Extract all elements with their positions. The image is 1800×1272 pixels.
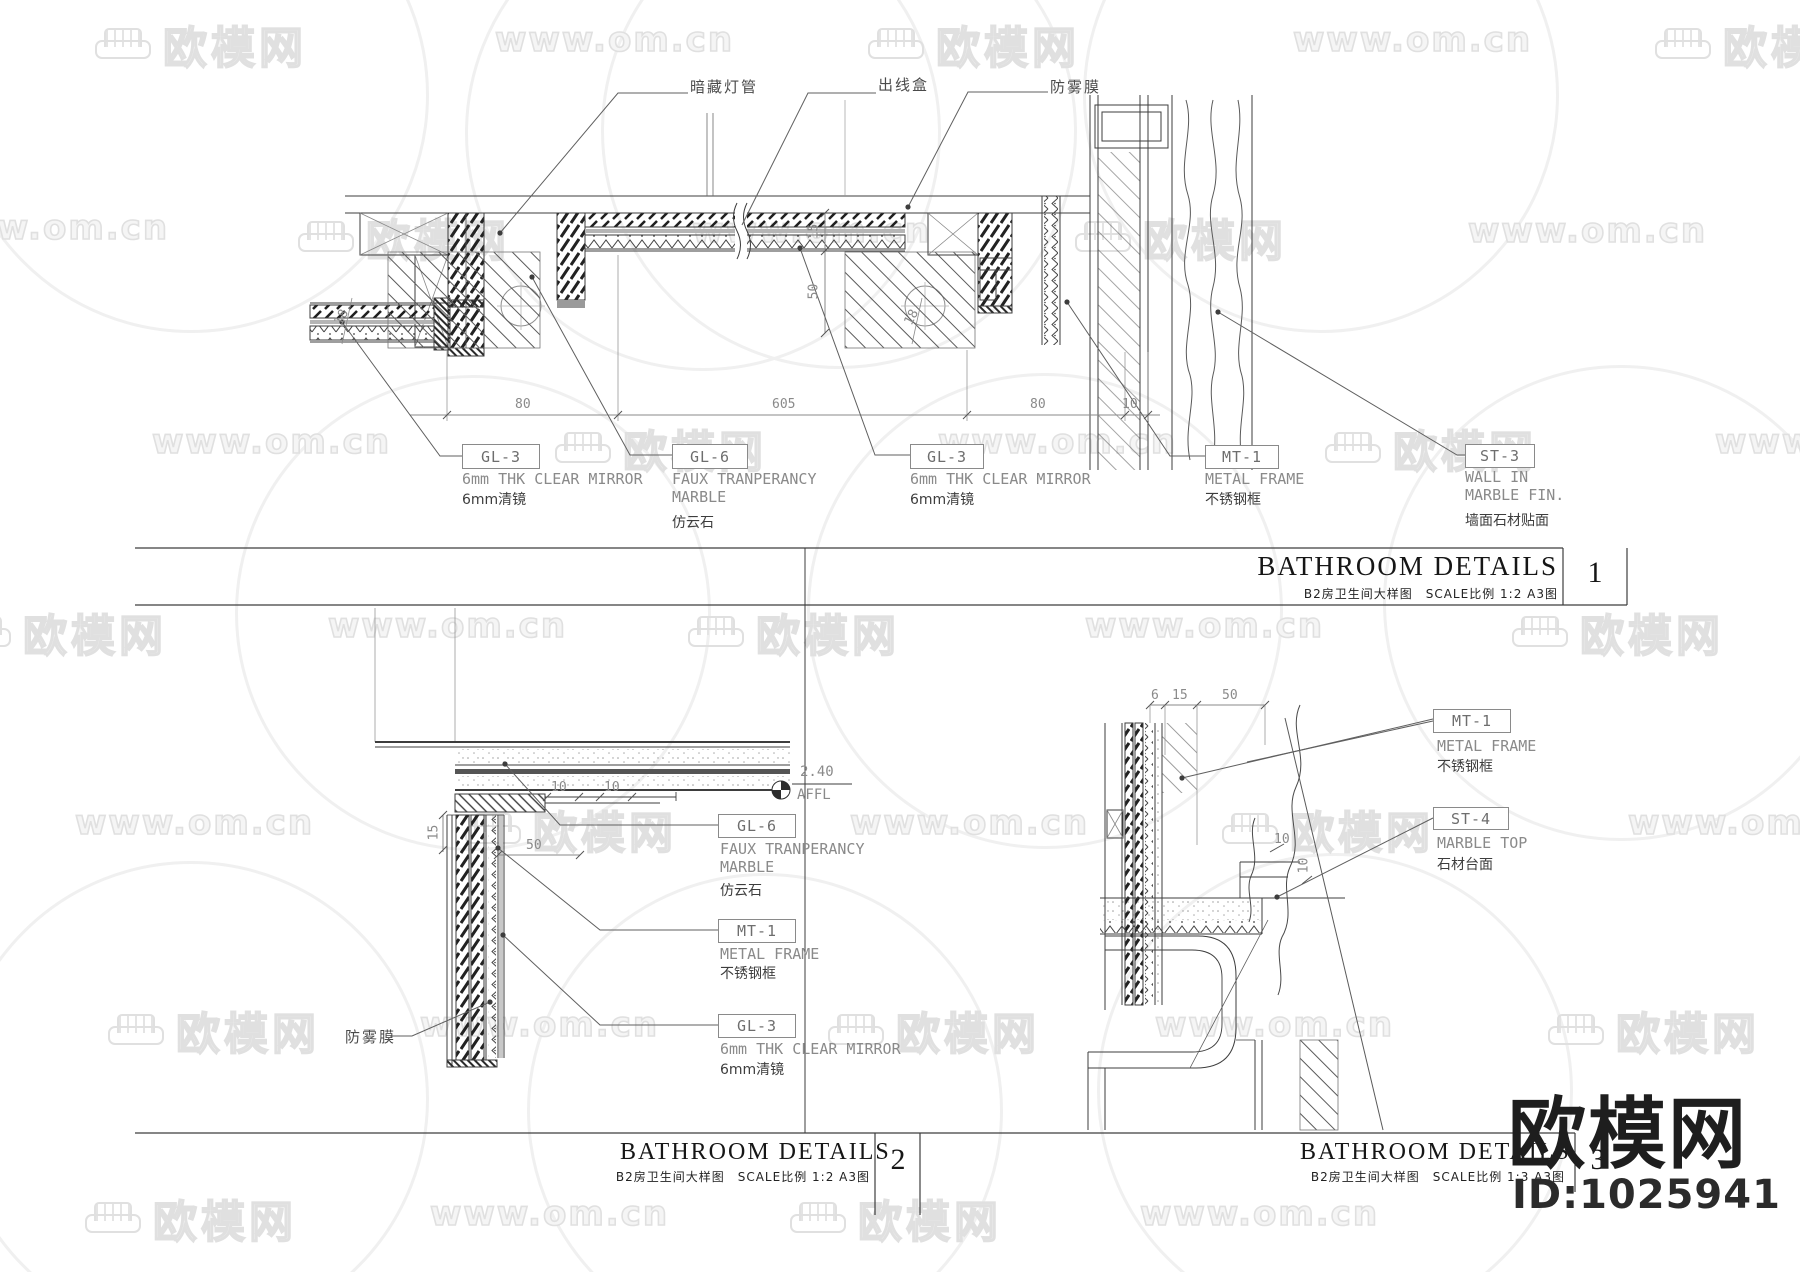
callout-hidden-lamp: 暗藏灯管 — [690, 76, 758, 97]
detail-1-drawing — [310, 95, 1252, 470]
callout-antifog-film: 防雾膜 — [345, 1026, 396, 1047]
tag-code: GL-6 — [737, 817, 777, 835]
tag-caption-en: 6mm THK CLEAR MIRROR — [462, 470, 643, 488]
tag-caption-cn: 不锈钢框 — [1205, 489, 1261, 509]
dim-label: 15 — [1172, 688, 1188, 703]
tag-code: GL-6 — [690, 448, 730, 466]
tag-caption-en: MARBLE — [672, 488, 726, 506]
tag-code: MT-1 — [737, 922, 777, 940]
material-tag-gl3: GL-3 — [462, 444, 540, 469]
tag-caption-en: MARBLE FIN. — [1465, 486, 1564, 504]
tag-caption-cn: 石材台面 — [1437, 854, 1493, 874]
level-value: 2.40 — [800, 764, 834, 780]
dim-label: 15 — [806, 224, 821, 240]
detail-2-subtitle: B2房卫生间大样图 SCALE比例 1:2 A3图 — [555, 1168, 870, 1185]
callout-outlet-box: 出线盒 — [878, 74, 929, 95]
detail-1-subtitle: B2房卫生间大样图 SCALE比例 1:2 A3图 — [1160, 585, 1558, 602]
tag-caption-cn: 墙面石材贴面 — [1465, 510, 1549, 530]
dim-label: 50 — [806, 284, 821, 300]
tag-caption-cn: 不锈钢框 — [720, 963, 776, 983]
tag-caption-cn: 不锈钢框 — [1437, 756, 1493, 776]
dim-label: 605 — [772, 397, 795, 412]
detail-2-number: 2 — [876, 1143, 920, 1177]
image-id: ID:1025941 — [1512, 1172, 1781, 1218]
tag-caption-cn: 6mm清镜 — [720, 1059, 784, 1079]
drawing-sheet: 欧模网 www.om.cn 欧模网 www.om.cn 欧模网 www.om.c… — [0, 0, 1800, 1272]
material-tag-mt1: MT-1 — [718, 919, 796, 943]
level-datum: AFFL — [797, 787, 831, 803]
material-tag-gl3: GL-3 — [910, 444, 984, 469]
dim-label: 80 — [1030, 397, 1046, 412]
tag-caption-en: 6mm THK CLEAR MIRROR — [910, 470, 1091, 488]
dim-label: 80 — [515, 397, 531, 412]
detail-3-drawing — [1088, 705, 1383, 1130]
detail-1-title: BATHROOM DETAILS — [1160, 551, 1558, 582]
tag-caption-en: METAL FRAME — [1205, 470, 1304, 488]
tag-code: MT-1 — [1222, 448, 1262, 466]
tag-caption-en: 6mm THK CLEAR MIRROR — [720, 1040, 901, 1058]
tag-caption-en: METAL FRAME — [720, 945, 819, 963]
dim-label: 50 — [1222, 688, 1238, 703]
tag-caption-en: WALL IN — [1465, 468, 1528, 486]
tag-caption-cn: 仿云石 — [720, 880, 762, 900]
tag-caption-cn: 6mm清镜 — [462, 489, 526, 509]
material-tag-gl6: GL-6 — [718, 814, 796, 838]
tag-caption-en: MARBLE — [720, 858, 774, 876]
dim-label: 50 — [526, 838, 542, 853]
tag-caption-en: FAUX TRANPERANCY — [672, 470, 817, 488]
dim-label: 10 — [1296, 858, 1311, 874]
material-tag-mt1: MT-1 — [1205, 445, 1279, 469]
material-tag-st4: ST-4 — [1433, 807, 1509, 830]
dim-label: 6 — [1151, 688, 1159, 703]
tag-code: ST-3 — [1480, 447, 1520, 465]
detail-1-number: 1 — [1572, 556, 1618, 590]
material-tag-mt1: MT-1 — [1433, 709, 1511, 733]
site-logo: 欧模网 — [1508, 1072, 1748, 1184]
callout-antifog-film: 防雾膜 — [1050, 76, 1101, 97]
tag-caption-en: FAUX TRANPERANCY — [720, 840, 865, 858]
dim-label: 10 — [1274, 832, 1290, 847]
dim-label: 10 — [1122, 397, 1138, 412]
tag-caption-cn: 仿云石 — [672, 512, 714, 532]
tag-caption-en: MARBLE TOP — [1437, 834, 1527, 852]
tag-code: GL-3 — [737, 1017, 777, 1035]
tag-code: MT-1 — [1452, 712, 1492, 730]
detail-2-title: BATHROOM DETAILS — [620, 1139, 870, 1166]
titleblock-lines — [135, 548, 1627, 1215]
tag-code: GL-3 — [927, 448, 967, 466]
tag-caption-en: METAL FRAME — [1437, 737, 1536, 755]
dim-label: 10 — [551, 780, 567, 795]
material-tag-st3: ST-3 — [1465, 444, 1535, 468]
material-tag-gl6: GL-6 — [672, 444, 748, 469]
dim-label: 10 — [604, 780, 620, 795]
dim-label: 15 — [426, 825, 441, 841]
material-tag-gl3: GL-3 — [718, 1014, 796, 1038]
tag-caption-cn: 6mm清镜 — [910, 489, 974, 509]
tag-code: GL-3 — [481, 448, 521, 466]
tag-code: ST-4 — [1451, 810, 1491, 828]
